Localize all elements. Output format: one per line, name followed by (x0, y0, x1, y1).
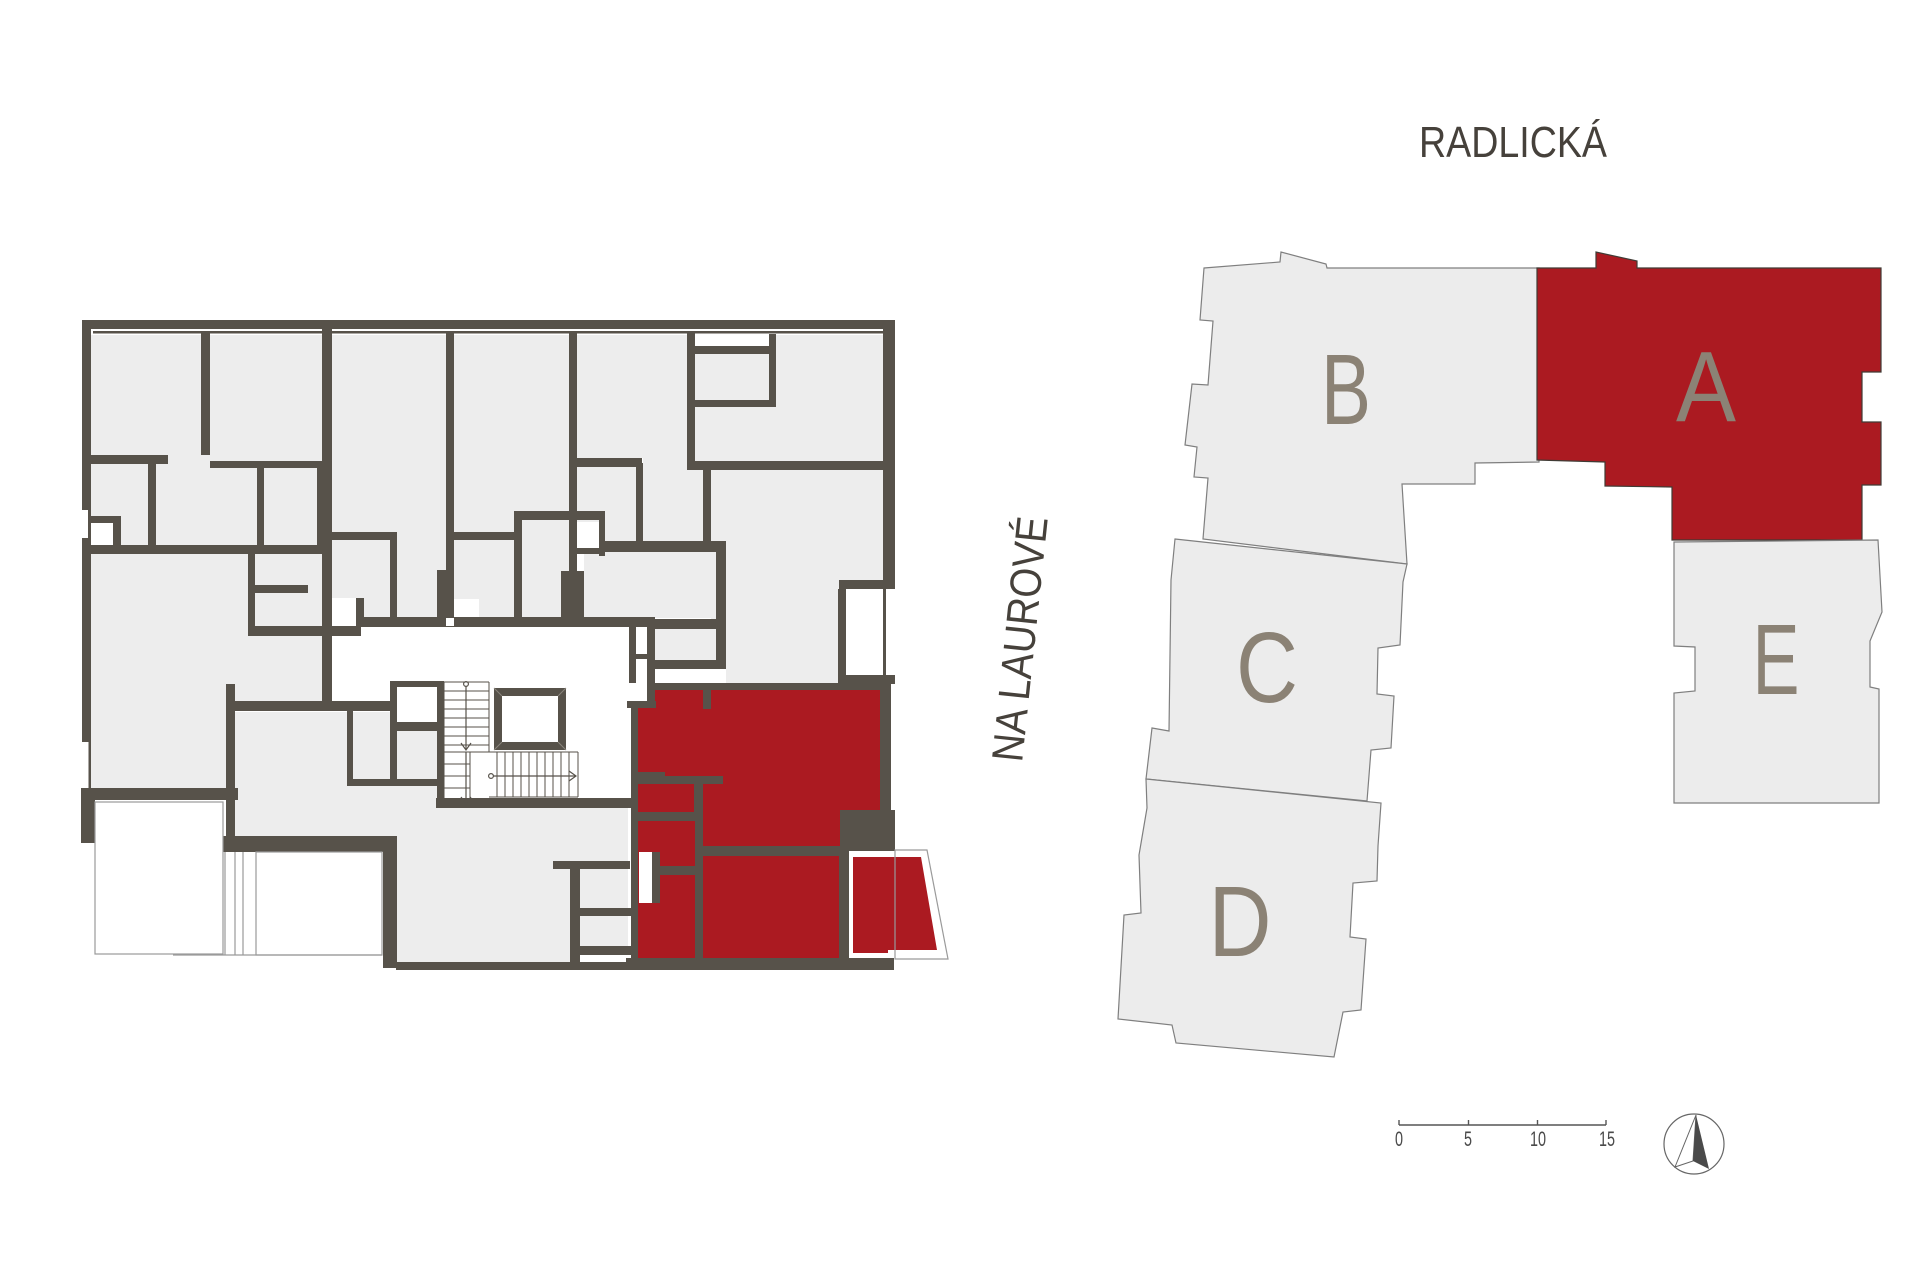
svg-text:C: C (1236, 612, 1298, 724)
svg-text:A: A (1676, 331, 1736, 443)
svg-text:RADLICKÁ: RADLICKÁ (1419, 118, 1608, 167)
svg-text:B: B (1321, 334, 1371, 446)
svg-text:10: 10 (1530, 1128, 1546, 1151)
svg-text:0: 0 (1395, 1128, 1403, 1151)
svg-text:5: 5 (1464, 1128, 1472, 1151)
svg-text:E: E (1753, 604, 1800, 716)
svg-text:15: 15 (1599, 1128, 1615, 1151)
svg-text:D: D (1209, 866, 1272, 978)
